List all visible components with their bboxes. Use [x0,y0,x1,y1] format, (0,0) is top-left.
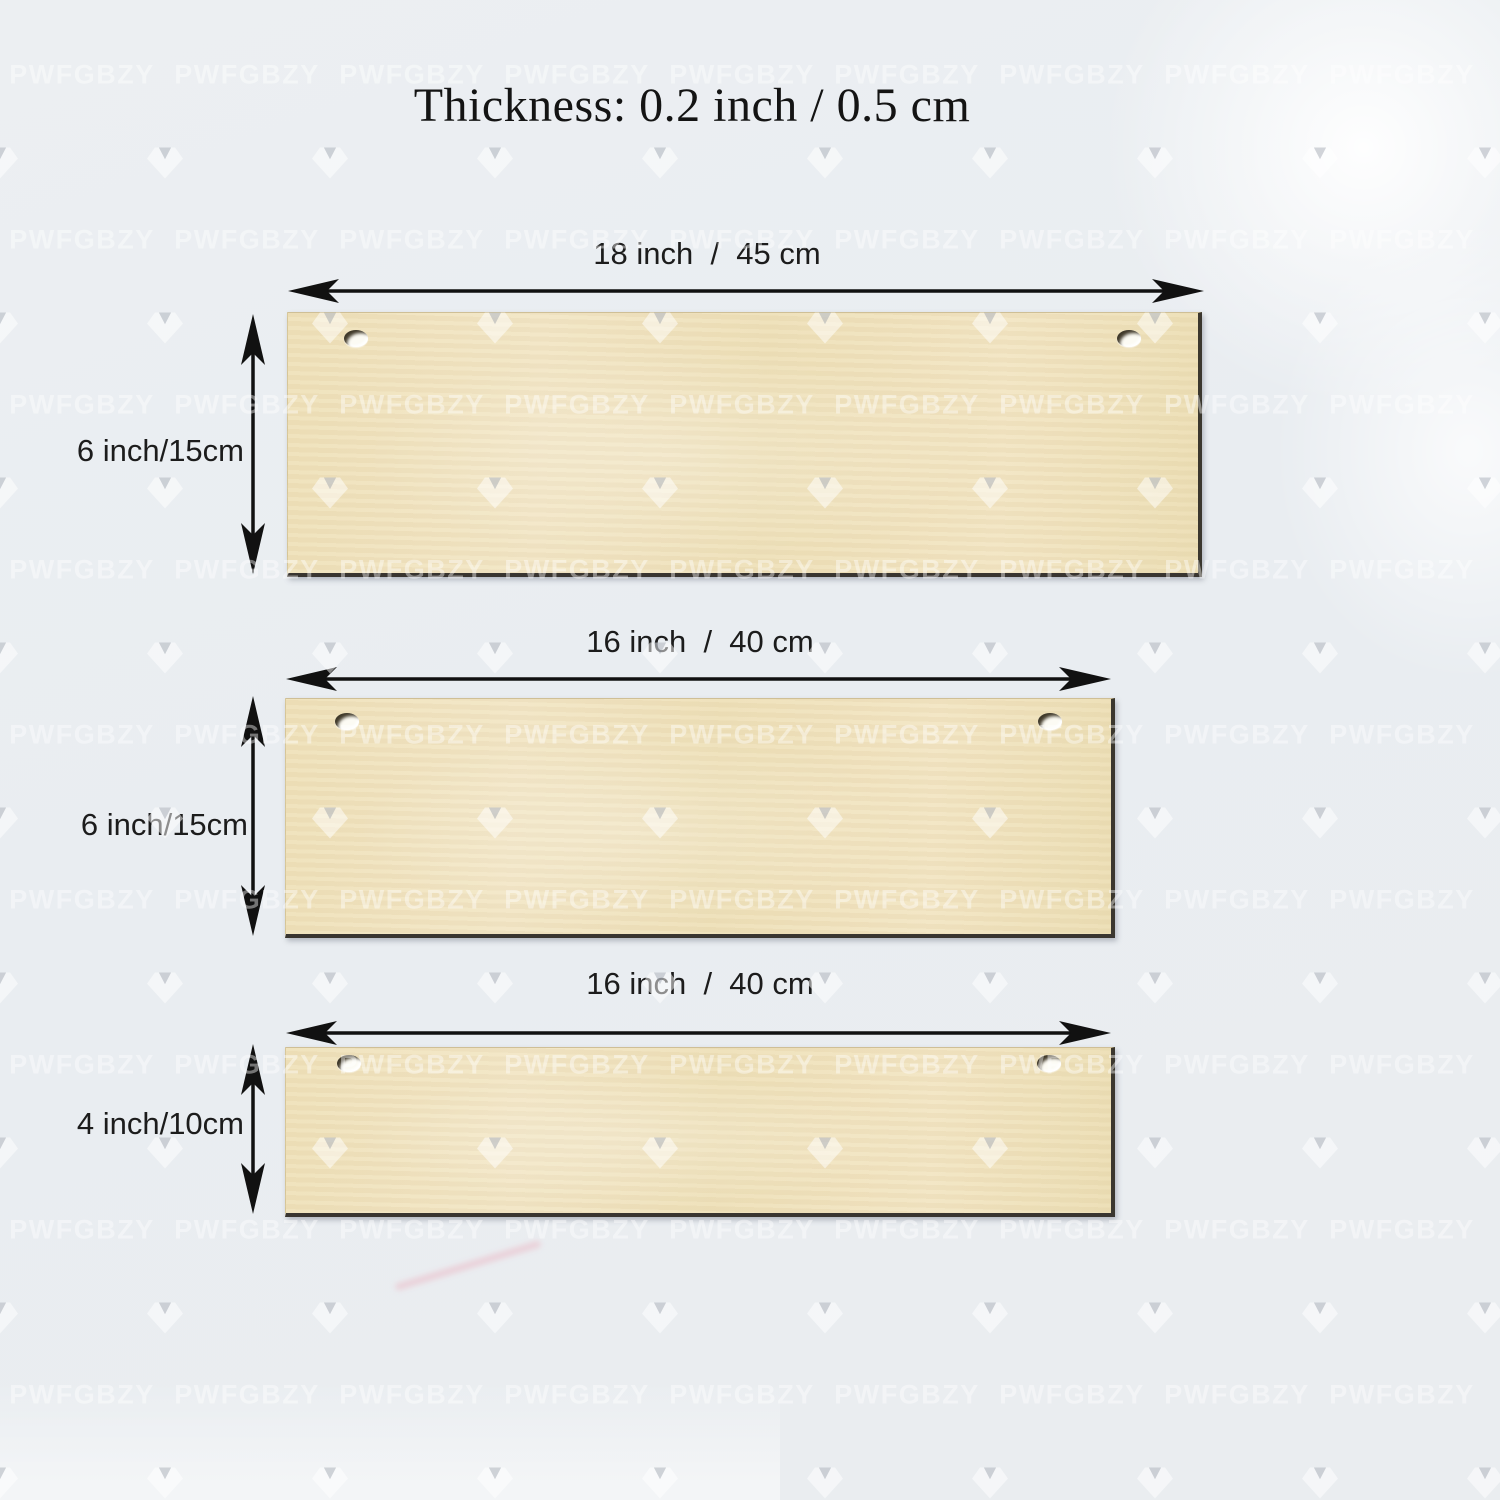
watermark-gem-icon [0,973,18,1004]
watermark-text: PWFGBZY [174,1380,320,1411]
watermark-gem-icon [0,1303,18,1334]
watermark-text: PWFGBZY [999,1380,1145,1411]
watermark-gem-icon [972,148,1008,179]
hang-hole-left [344,330,368,347]
watermark-text: PWFGBZY [9,720,155,751]
width-label-plaque-3: 16 inch / 40 cm [285,964,1115,1004]
wood-plaque-16x6 [285,698,1115,938]
watermark-gem-icon [1467,313,1500,344]
width-arrow-plaque-2 [285,664,1112,694]
watermark-text: PWFGBZY [1329,555,1475,586]
watermark-text: PWFGBZY [834,1380,980,1411]
watermark-text: PWFGBZY [1164,1050,1310,1081]
watermark-text: PWFGBZY [339,1380,485,1411]
watermark-text: PWFGBZY [9,225,155,256]
watermark-text: PWFGBZY [504,1215,650,1246]
watermark-gem-icon [1467,148,1500,179]
watermark-text: PWFGBZY [504,1380,650,1411]
watermark-gem-icon [147,1468,183,1499]
pink-thread-streak [394,1240,541,1291]
watermark-gem-icon [1137,643,1173,674]
watermark-gem-icon [1302,148,1338,179]
watermark-gem-icon [1302,643,1338,674]
watermark-text: PWFGBZY [1329,390,1475,421]
height-label-plaque-2: 6 inch/15cm [18,805,248,845]
watermark-text: PWFGBZY [1329,1380,1475,1411]
watermark-gem-icon [1302,313,1338,344]
watermark-text: PWFGBZY [1329,1050,1475,1081]
watermark-gem-icon [147,1303,183,1334]
watermark-gem-icon [1467,643,1500,674]
width-arrow-plaque-1 [287,276,1205,306]
watermark-gem-icon [312,1303,348,1334]
watermark-text: PWFGBZY [339,1215,485,1246]
watermark-text: PWFGBZY [9,1380,155,1411]
watermark-gem-icon [1137,1303,1173,1334]
watermark-gem-icon [1137,1468,1173,1499]
width-label-plaque-2: 16 inch / 40 cm [285,622,1115,662]
watermark-gem-icon [1302,973,1338,1004]
watermark-gem-icon [972,1468,1008,1499]
watermark-gem-icon [1467,1468,1500,1499]
watermark-gem-icon [0,1138,18,1169]
wood-plaque-18x6 [287,312,1202,577]
hang-hole-right [1038,713,1062,730]
watermark-gem-icon [147,643,183,674]
watermark-text: PWFGBZY [9,885,155,916]
watermark-gem-icon [0,313,18,344]
watermark-gem-icon [1302,1303,1338,1334]
watermark-text: PWFGBZY [1164,1380,1310,1411]
product-dimension-diagram: Thickness: 0.2 inch / 0.5 cm 18 inch / 4… [0,0,1500,1500]
watermark-gem-icon [147,973,183,1004]
watermark-gem-icon [0,808,18,839]
watermark-text: PWFGBZY [174,1215,320,1246]
watermark-text: PWFGBZY [1164,225,1310,256]
watermark-gem-icon [807,1303,843,1334]
height-label-plaque-3: 4 inch/10cm [18,1104,244,1144]
watermark-gem-icon [1467,973,1500,1004]
hang-hole-right [1117,330,1141,347]
watermark-gem-icon [0,1468,18,1499]
watermark-text: PWFGBZY [999,1215,1145,1246]
watermark-gem-icon [1137,808,1173,839]
watermark-gem-icon [477,1468,513,1499]
thickness-title: Thickness: 0.2 inch / 0.5 cm [0,78,1384,134]
watermark-text: PWFGBZY [1329,720,1475,751]
watermark-gem-icon [147,313,183,344]
watermark-gem-icon [642,148,678,179]
watermark-text: PWFGBZY [1164,885,1310,916]
watermark-gem-icon [1467,1138,1500,1169]
watermark-text: PWFGBZY [1329,1215,1475,1246]
background-bottom-highlight [0,1380,780,1500]
watermark-gem-icon [147,148,183,179]
watermark-gem-icon [972,1303,1008,1334]
watermark-gem-icon [1302,1468,1338,1499]
watermark-text: PWFGBZY [9,390,155,421]
watermark-text: PWFGBZY [1329,885,1475,916]
watermark-gem-icon [1302,808,1338,839]
watermark-gem-icon [0,643,18,674]
watermark-text: PWFGBZY [9,1215,155,1246]
watermark-gem-icon [642,1303,678,1334]
watermark-gem-icon [1137,148,1173,179]
watermark-text: PWFGBZY [669,1380,815,1411]
watermark-text: PWFGBZY [9,555,155,586]
watermark-gem-icon [312,148,348,179]
hang-hole-left [337,1055,361,1072]
watermark-text: PWFGBZY [9,1050,155,1081]
width-arrow-plaque-3 [285,1018,1112,1048]
watermark-gem-icon [477,148,513,179]
watermark-gem-icon [807,148,843,179]
watermark-gem-icon [1302,1138,1338,1169]
watermark-text: PWFGBZY [1164,720,1310,751]
watermark-gem-icon [642,1468,678,1499]
watermark-text: PWFGBZY [834,1215,980,1246]
watermark-gem-icon [1302,478,1338,509]
watermark-gem-icon [312,1468,348,1499]
hang-hole-left [335,713,359,730]
hang-hole-right [1037,1055,1061,1072]
wood-plaque-16x4 [285,1047,1115,1217]
watermark-gem-icon [0,148,18,179]
watermark-gem-icon [807,1468,843,1499]
watermark-gem-icon [1467,1303,1500,1334]
watermark-gem-icon [1137,1138,1173,1169]
watermark-gem-icon [477,1303,513,1334]
width-label-plaque-1: 18 inch / 45 cm [287,234,1127,274]
watermark-text: PWFGBZY [1164,1215,1310,1246]
watermark-gem-icon [1137,973,1173,1004]
watermark-gem-icon [147,478,183,509]
height-label-plaque-1: 6 inch/15cm [18,431,244,471]
watermark-gem-icon [0,478,18,509]
watermark-gem-icon [1467,478,1500,509]
watermark-text: PWFGBZY [1329,225,1475,256]
watermark-text: PWFGBZY [669,1215,815,1246]
watermark-gem-icon [1467,808,1500,839]
